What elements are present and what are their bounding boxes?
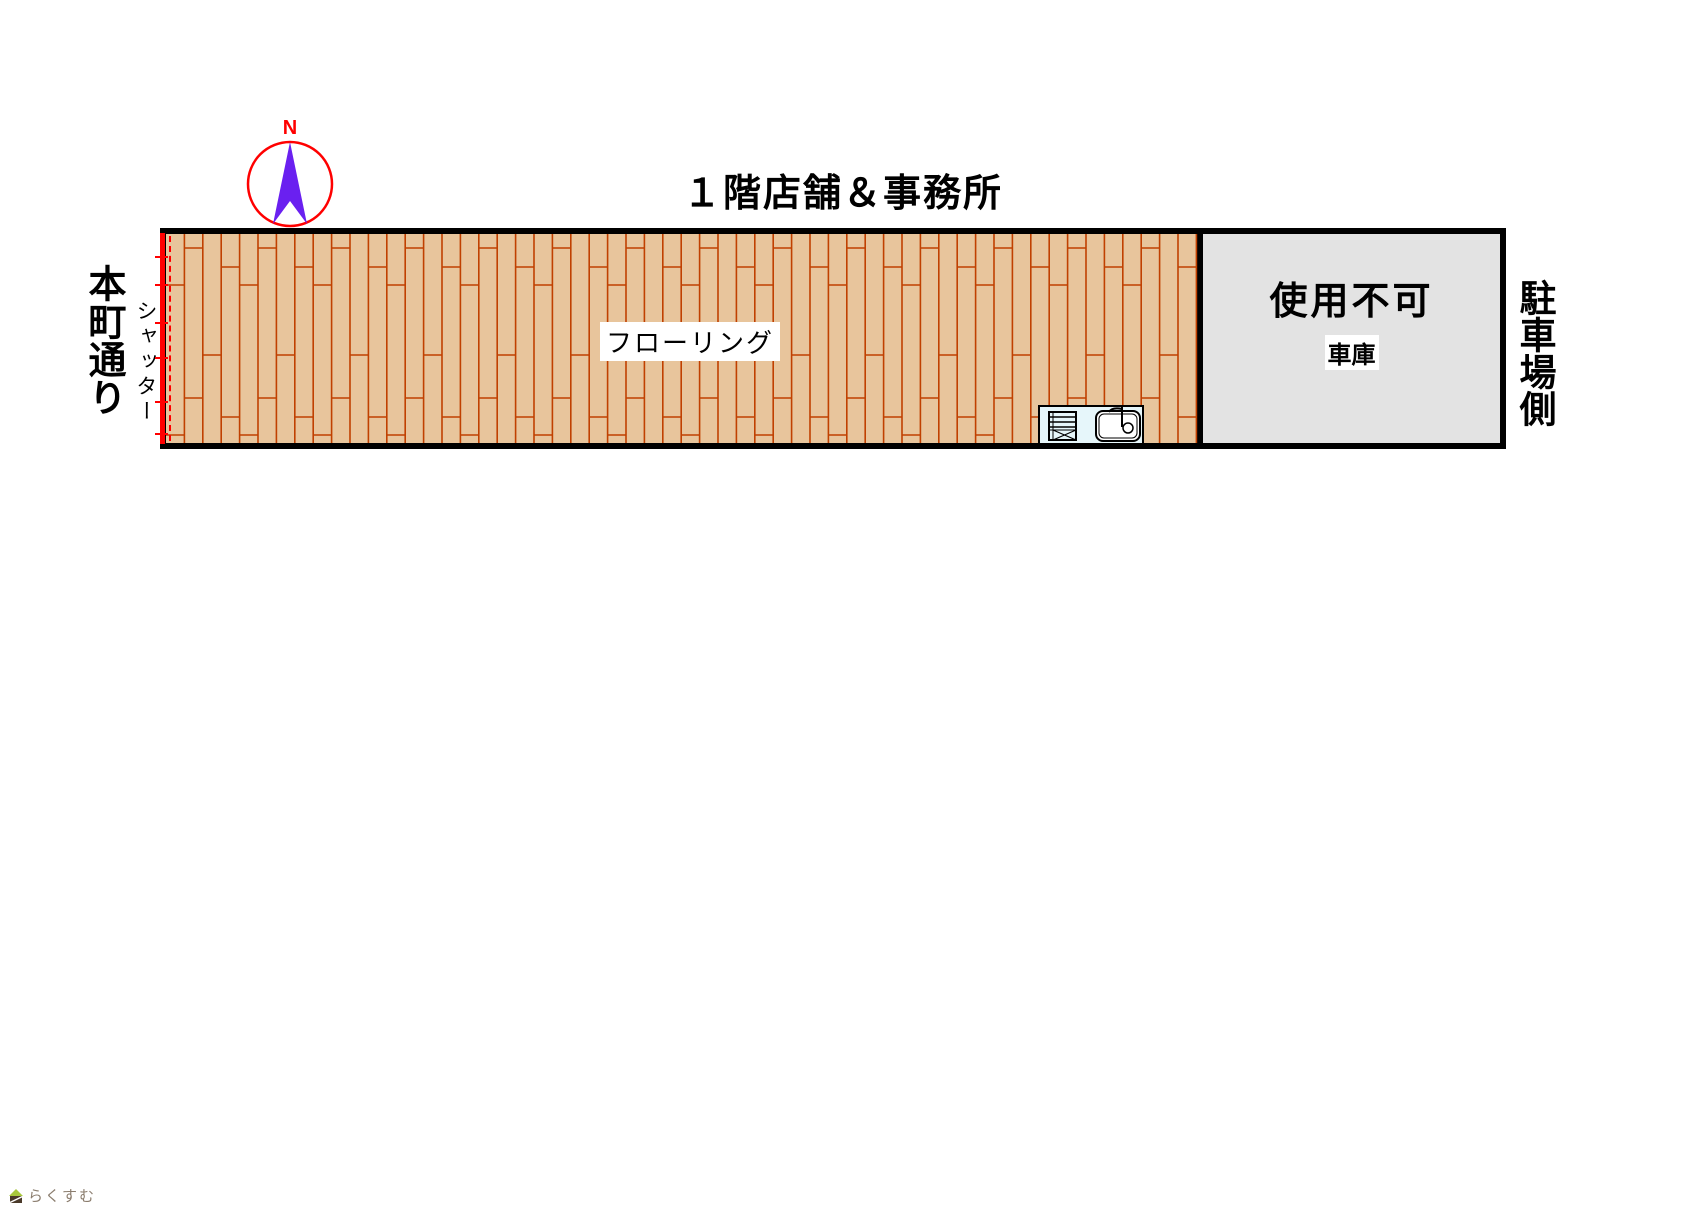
shutter-tick — [155, 284, 168, 286]
shutter-tick — [155, 433, 168, 435]
shutter-dashed-line — [169, 236, 171, 441]
flooring-area: フローリング — [166, 234, 1197, 443]
shutter-tick — [155, 256, 168, 258]
north-compass: N — [246, 108, 334, 230]
shutter-tick — [155, 401, 168, 403]
watermark-text: らくすむ — [28, 1185, 96, 1206]
floor-plan: フローリング 使用不可 — [160, 228, 1506, 449]
page-title: １階店舗＆事務所 — [683, 162, 1003, 217]
north-arrow-icon — [273, 142, 307, 224]
flooring-label: フローリング — [600, 322, 780, 361]
watermark: らくすむ — [8, 1185, 96, 1206]
compass-n-label: N — [283, 117, 297, 139]
house-logo-icon — [8, 1188, 24, 1204]
parking-side-label: 駐車場側 — [1516, 279, 1553, 427]
kitchen-sink-icon — [1038, 405, 1144, 445]
shutter-tick — [155, 357, 168, 359]
shutter-tick — [155, 322, 168, 324]
garage-status-label: 使用不可 — [1269, 270, 1433, 325]
garage-name-label: 車庫 — [1325, 335, 1379, 370]
floor-plan-page: N １階店舗＆事務所 フローリング — [0, 0, 1708, 1208]
street-label: 本町通り — [84, 264, 122, 416]
garage-area: 使用不可 車庫 — [1203, 234, 1500, 443]
shutter-line — [160, 233, 165, 444]
shutter-label: シャッター — [135, 300, 156, 425]
